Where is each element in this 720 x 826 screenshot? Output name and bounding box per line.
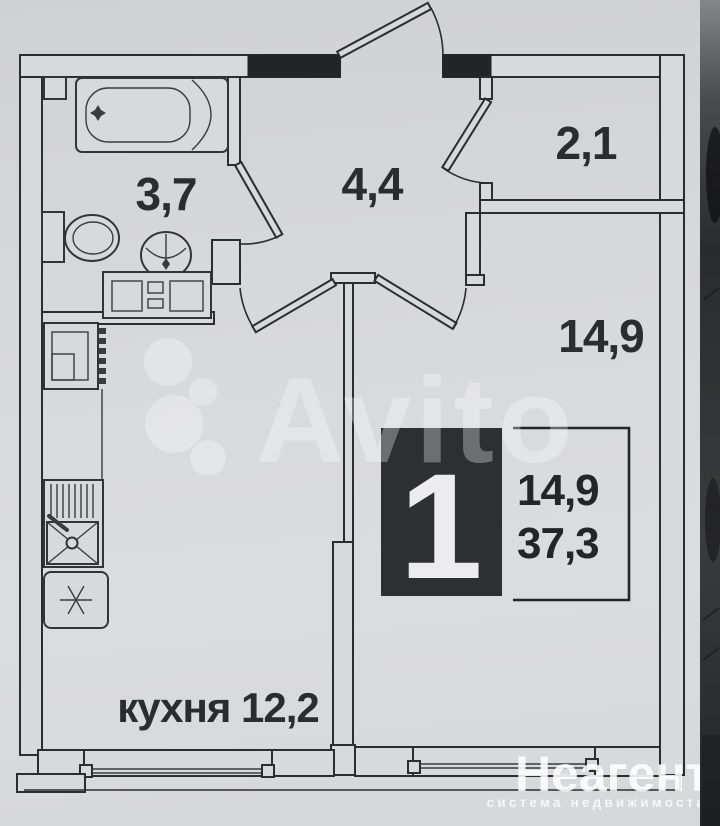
avito-logo-circle xyxy=(145,395,203,453)
wardrobe-room: 2,1 xyxy=(442,77,684,285)
kitchen-sink-symbol xyxy=(44,480,103,567)
wardrobe-door xyxy=(442,98,491,183)
living-room-door xyxy=(374,275,466,329)
toilet-symbol xyxy=(42,212,119,262)
agency-name-text: Неагент xyxy=(515,746,710,802)
agency-watermark: Неагент система недвижимости xyxy=(487,746,710,810)
avito-watermark-text: Avito xyxy=(256,352,576,488)
kitchen-door xyxy=(240,279,336,332)
avito-logo-circle xyxy=(189,378,217,406)
bathtub-symbol xyxy=(76,78,228,152)
duct-shaft xyxy=(44,77,66,99)
hallway-area-label: 4,4 xyxy=(342,158,404,210)
floorplan-drawing: 3,7 4,4 xyxy=(0,0,720,826)
kitchen-window xyxy=(38,750,334,777)
floorplan-photo: 3,7 4,4 xyxy=(0,0,720,826)
avito-logo-circle xyxy=(144,338,192,386)
vanity-cabinet-symbol xyxy=(103,272,211,318)
wardrobe-area-label: 2,1 xyxy=(556,117,617,169)
avito-logo-circle xyxy=(190,440,226,476)
badge-total-area: 37,3 xyxy=(517,519,599,568)
bathroom-area-label: 3,7 xyxy=(136,168,197,220)
avito-watermark: Avito xyxy=(144,338,576,488)
kitchen-area-label: кухня 12,2 xyxy=(117,684,319,731)
stove-symbol xyxy=(44,572,108,628)
bathroom: 3,7 xyxy=(42,77,282,324)
fridge-symbol xyxy=(44,323,106,389)
agency-tagline-text: система недвижимости xyxy=(487,795,708,810)
entrance-door xyxy=(337,3,443,58)
photo-edge-strip xyxy=(700,0,720,826)
bathroom-door xyxy=(235,162,282,244)
